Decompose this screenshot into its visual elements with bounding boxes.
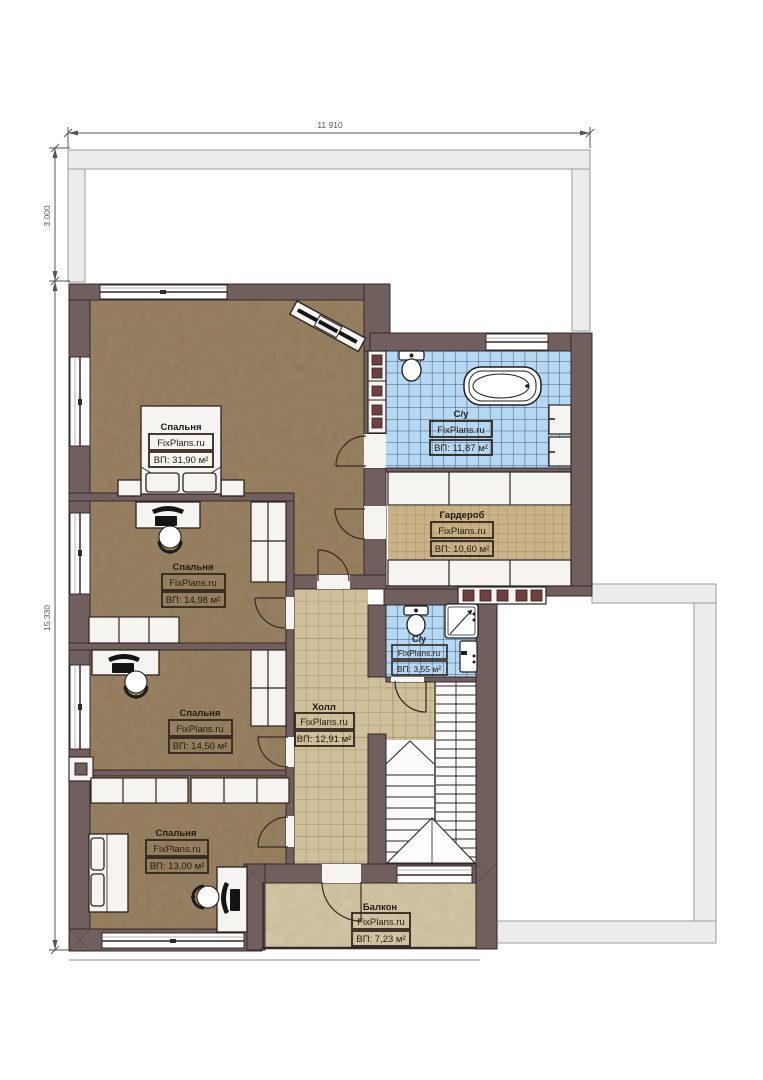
svg-text:ВП: 14,50 м²: ВП: 14,50 м² xyxy=(173,741,228,752)
svg-text:Гардероб: Гардероб xyxy=(440,510,485,521)
svg-text:Спальня: Спальня xyxy=(179,708,220,719)
svg-text:Спальня: Спальня xyxy=(155,828,196,839)
svg-text:ВП: 3,55 м²: ВП: 3,55 м² xyxy=(397,664,441,674)
svg-text:FixPlans.ru: FixPlans.ru xyxy=(357,917,405,928)
svg-text:FixPlans.ru: FixPlans.ru xyxy=(176,724,224,735)
svg-text:FixPlans.ru: FixPlans.ru xyxy=(438,526,486,537)
svg-text:FixPlans.ru: FixPlans.ru xyxy=(157,438,205,449)
svg-text:Балкон: Балкон xyxy=(363,902,398,913)
svg-text:ВП: 31,90 м²: ВП: 31,90 м² xyxy=(154,455,209,466)
svg-text:FixPlans.ru: FixPlans.ru xyxy=(398,648,441,658)
svg-text:ВП: 7,23 м²: ВП: 7,23 м² xyxy=(356,934,405,945)
svg-text:Спальня: Спальня xyxy=(172,562,213,573)
svg-text:С/у: С/у xyxy=(454,409,470,420)
svg-text:3.000: 3.000 xyxy=(42,205,52,227)
svg-text:ВП: 10,60 м²: ВП: 10,60 м² xyxy=(435,544,490,555)
svg-text:Спальня: Спальня xyxy=(160,422,201,433)
svg-text:FixPlans.ru: FixPlans.ru xyxy=(169,578,217,589)
svg-text:ВП: 12,91 м²: ВП: 12,91 м² xyxy=(297,734,352,745)
svg-text:ВП: 11,87 м²: ВП: 11,87 м² xyxy=(434,443,488,454)
svg-text:Холл: Холл xyxy=(312,702,336,713)
svg-text:ВП: 13,00 м²: ВП: 13,00 м² xyxy=(150,861,205,872)
svg-text:11 910: 11 910 xyxy=(317,120,343,130)
svg-text:FixPlans.ru: FixPlans.ru xyxy=(300,717,348,728)
svg-text:FixPlans.ru: FixPlans.ru xyxy=(437,425,485,436)
svg-text:ВП: 14,98 м²: ВП: 14,98 м² xyxy=(166,595,221,606)
svg-text:FixPlans.ru: FixPlans.ru xyxy=(153,844,201,855)
svg-text:15.330: 15.330 xyxy=(42,605,52,631)
svg-text:С/у: С/у xyxy=(412,634,426,644)
